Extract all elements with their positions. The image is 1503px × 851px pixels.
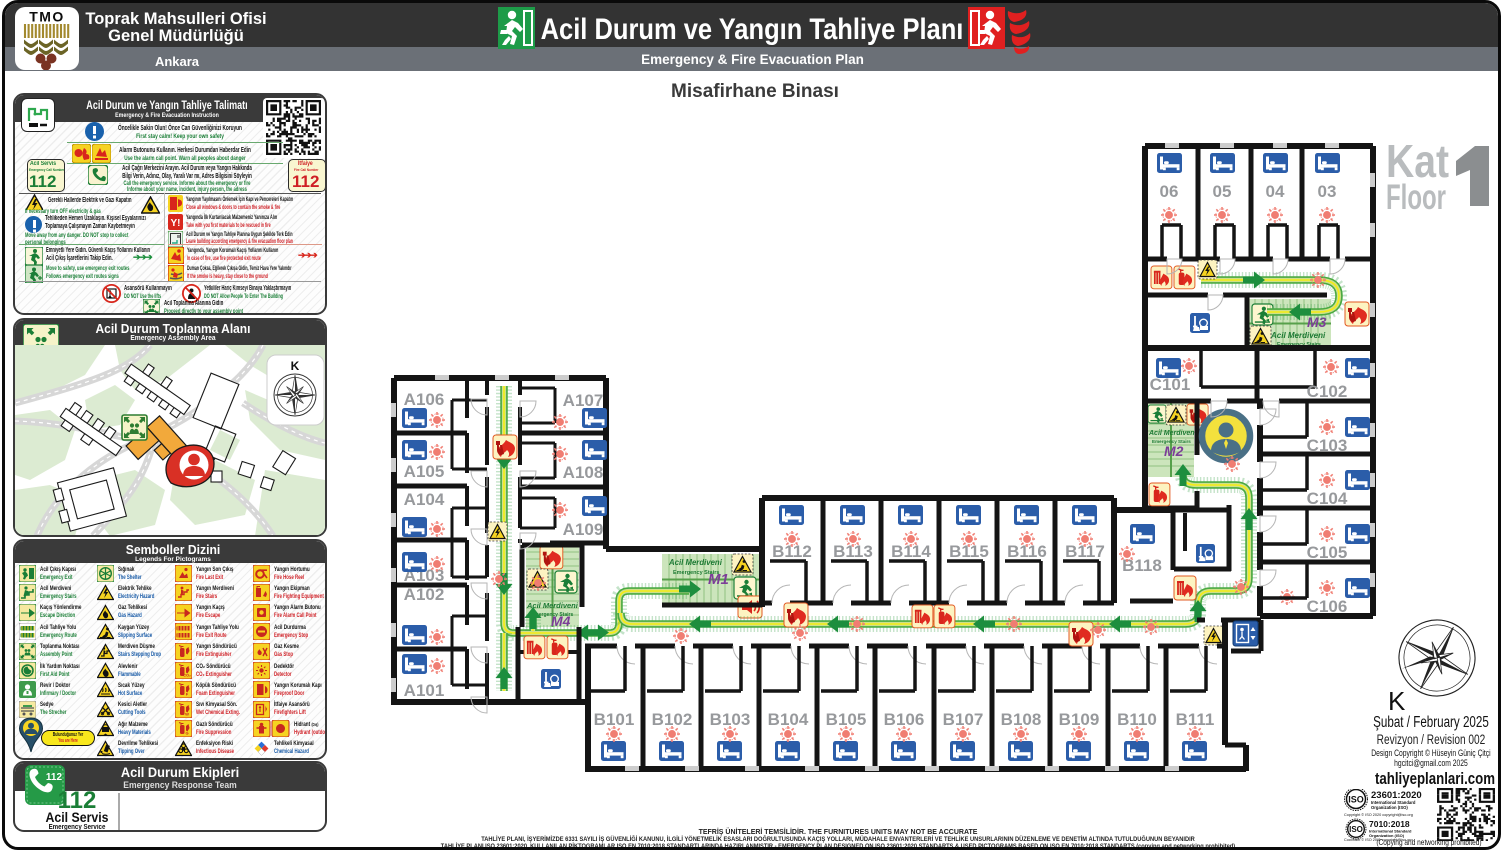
svg-text:A107: A107 [563,391,604,410]
svg-text:C104: C104 [1307,489,1348,508]
svg-text:A106: A106 [404,390,445,409]
svg-text:C106: C106 [1307,597,1348,616]
svg-text:Floor: Floor [1386,178,1446,217]
svg-text:A105: A105 [404,462,445,481]
svg-text:03: 03 [1318,182,1337,201]
svg-text:C103: C103 [1307,436,1348,455]
svg-text:7010:2018: 7010:2018 [1369,819,1410,829]
svg-text:M1: M1 [708,571,729,588]
svg-text:05: 05 [1213,182,1232,201]
svg-text:M3: M3 [1307,314,1327,330]
svg-text:Organization (ISO): Organization (ISO) [1371,805,1408,810]
svg-text:K: K [1388,686,1406,716]
svg-text:M2: M2 [1164,443,1184,459]
svg-text:06: 06 [1160,182,1179,201]
svg-text:ISO: ISO [1348,795,1364,805]
svg-text:A109: A109 [563,520,604,539]
svg-text:C101: C101 [1150,375,1191,394]
svg-text:A102: A102 [404,585,445,604]
svg-text:Acil Merdiveni: Acil Merdiveni [1270,331,1326,340]
svg-text:A104: A104 [404,490,445,509]
svg-text:C102: C102 [1307,382,1348,401]
svg-text:Acil Merdiveni: Acil Merdiveni [1148,430,1198,437]
svg-text:C105: C105 [1307,543,1348,562]
svg-text:B118: B118 [1122,556,1162,575]
svg-text:Acil Merdiveni: Acil Merdiveni [668,558,723,567]
svg-text:Copyright © ISO 2020 copyright: Copyright © ISO 2020 copyright@iso.org [1344,813,1413,817]
svg-text:04: 04 [1266,182,1285,201]
svg-text:A101: A101 [404,681,445,700]
svg-text:A108: A108 [563,463,604,482]
